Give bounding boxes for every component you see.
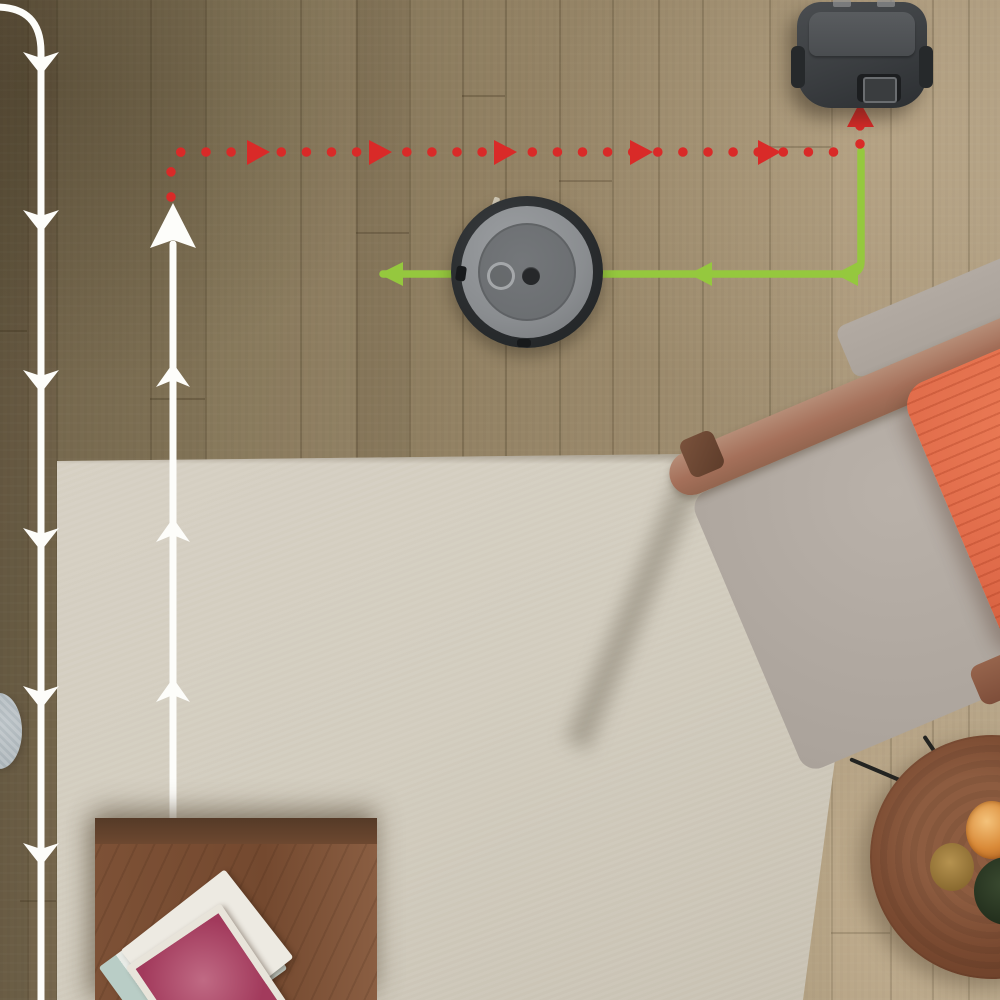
dock-side-tab: [919, 46, 933, 88]
red-dotted-line: [171, 152, 844, 197]
robot-bumper-notch: [517, 339, 531, 347]
magazines: [103, 896, 313, 1000]
arrow-right-icon: [758, 140, 781, 165]
living-room-photo: [0, 0, 1000, 1000]
arrow-right-icon: [369, 140, 392, 165]
white-row-down-path: [0, 7, 59, 1000]
charging-dock: [797, 2, 927, 108]
arrow-right-icon: [630, 140, 653, 165]
dock-side-tab: [791, 46, 805, 88]
dock-port-window: [863, 77, 897, 103]
arrow-left-icon: [835, 262, 858, 286]
arrow-left-icon: [689, 262, 712, 286]
robot-clean-button: [522, 267, 540, 285]
dock-notch: [877, 0, 895, 7]
arrow-left-icon: [379, 262, 403, 286]
robot-camera-ring: [487, 262, 515, 290]
robot-bumper-notch: [455, 265, 467, 281]
dock-notch: [833, 0, 851, 7]
red-dotted-path: [171, 102, 874, 197]
arrow-right-icon: [247, 140, 270, 165]
robot-vacuum: [451, 196, 603, 348]
white-row-up-path: [150, 203, 196, 822]
coffee-table-edge: [95, 818, 377, 844]
dock-lid: [809, 12, 915, 56]
coffee-table: [95, 818, 377, 1000]
arrow-right-icon: [494, 140, 517, 165]
